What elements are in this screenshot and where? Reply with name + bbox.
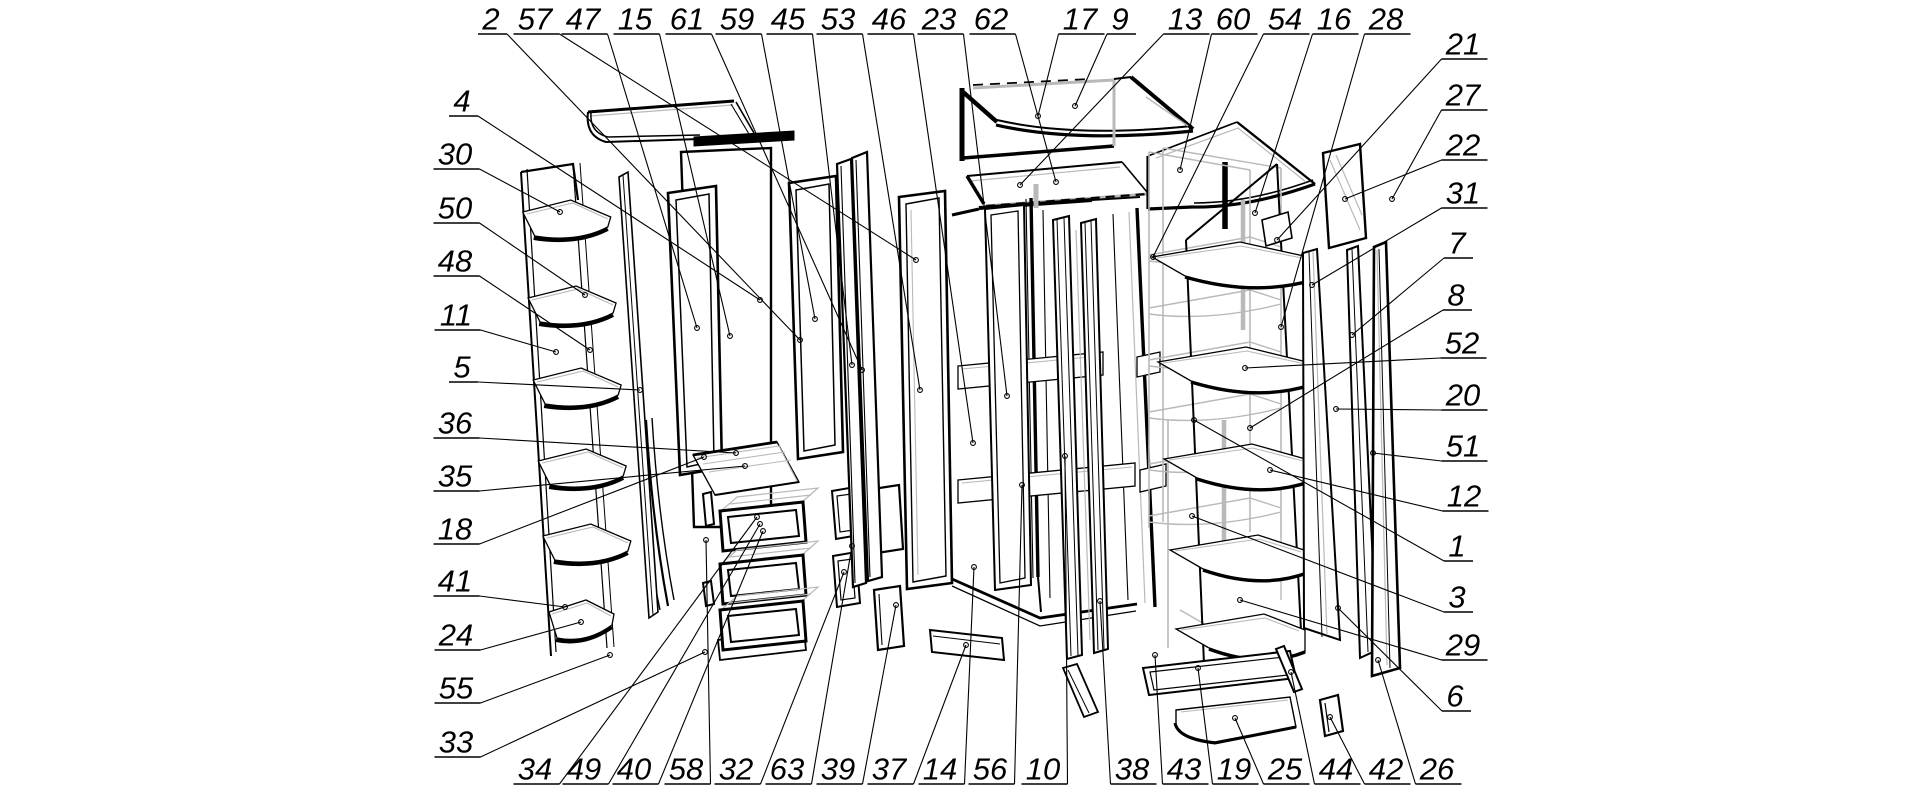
svg-text:31: 31 bbox=[1446, 176, 1480, 211]
svg-text:60: 60 bbox=[1216, 2, 1250, 37]
svg-text:32: 32 bbox=[719, 752, 753, 787]
svg-text:44: 44 bbox=[1319, 752, 1353, 787]
svg-text:18: 18 bbox=[438, 512, 473, 547]
svg-text:3: 3 bbox=[1448, 580, 1465, 615]
svg-text:33: 33 bbox=[439, 725, 473, 760]
svg-text:15: 15 bbox=[618, 2, 653, 37]
svg-text:54: 54 bbox=[1268, 2, 1302, 37]
svg-text:19: 19 bbox=[1217, 752, 1251, 787]
svg-text:29: 29 bbox=[1445, 628, 1480, 663]
svg-text:23: 23 bbox=[921, 2, 956, 37]
svg-text:34: 34 bbox=[518, 752, 552, 787]
svg-text:20: 20 bbox=[1445, 378, 1480, 413]
svg-text:50: 50 bbox=[438, 191, 472, 226]
svg-text:59: 59 bbox=[720, 2, 754, 37]
svg-text:38: 38 bbox=[1115, 752, 1150, 787]
svg-text:10: 10 bbox=[1026, 752, 1060, 787]
svg-text:14: 14 bbox=[923, 752, 957, 787]
svg-text:53: 53 bbox=[821, 2, 855, 37]
svg-text:57: 57 bbox=[518, 2, 554, 37]
svg-text:6: 6 bbox=[1446, 679, 1464, 714]
svg-text:22: 22 bbox=[1445, 128, 1480, 163]
svg-text:24: 24 bbox=[438, 618, 473, 653]
svg-text:25: 25 bbox=[1267, 752, 1303, 787]
svg-text:35: 35 bbox=[438, 459, 473, 494]
svg-text:17: 17 bbox=[1063, 2, 1099, 37]
svg-text:26: 26 bbox=[1419, 752, 1455, 787]
svg-text:51: 51 bbox=[1446, 429, 1480, 464]
svg-text:45: 45 bbox=[771, 2, 806, 37]
svg-text:41: 41 bbox=[438, 564, 472, 599]
svg-text:4: 4 bbox=[453, 84, 470, 119]
svg-text:56: 56 bbox=[973, 752, 1008, 787]
svg-text:21: 21 bbox=[1445, 27, 1480, 62]
svg-text:36: 36 bbox=[438, 406, 473, 441]
svg-text:47: 47 bbox=[566, 2, 602, 37]
svg-text:7: 7 bbox=[1448, 226, 1467, 261]
svg-text:30: 30 bbox=[438, 137, 472, 172]
svg-text:58: 58 bbox=[669, 752, 704, 787]
svg-text:48: 48 bbox=[438, 244, 473, 279]
svg-text:11: 11 bbox=[440, 298, 472, 333]
svg-text:1: 1 bbox=[1448, 529, 1465, 564]
svg-text:37: 37 bbox=[872, 752, 908, 787]
svg-text:9: 9 bbox=[1111, 2, 1128, 37]
svg-text:42: 42 bbox=[1369, 752, 1403, 787]
svg-text:43: 43 bbox=[1167, 752, 1201, 787]
svg-text:39: 39 bbox=[821, 752, 855, 787]
svg-text:55: 55 bbox=[439, 671, 474, 706]
svg-text:62: 62 bbox=[974, 2, 1008, 37]
svg-text:5: 5 bbox=[453, 350, 471, 385]
svg-text:49: 49 bbox=[567, 752, 601, 787]
svg-text:46: 46 bbox=[872, 2, 907, 37]
svg-text:27: 27 bbox=[1445, 78, 1482, 113]
svg-text:13: 13 bbox=[1168, 2, 1202, 37]
svg-text:12: 12 bbox=[1447, 479, 1481, 514]
svg-text:16: 16 bbox=[1317, 2, 1352, 37]
svg-text:8: 8 bbox=[1447, 278, 1465, 313]
svg-text:63: 63 bbox=[770, 752, 804, 787]
svg-text:61: 61 bbox=[670, 2, 704, 37]
svg-text:52: 52 bbox=[1445, 326, 1479, 361]
svg-text:2: 2 bbox=[481, 2, 499, 37]
svg-text:28: 28 bbox=[1368, 2, 1404, 37]
svg-text:40: 40 bbox=[617, 752, 651, 787]
